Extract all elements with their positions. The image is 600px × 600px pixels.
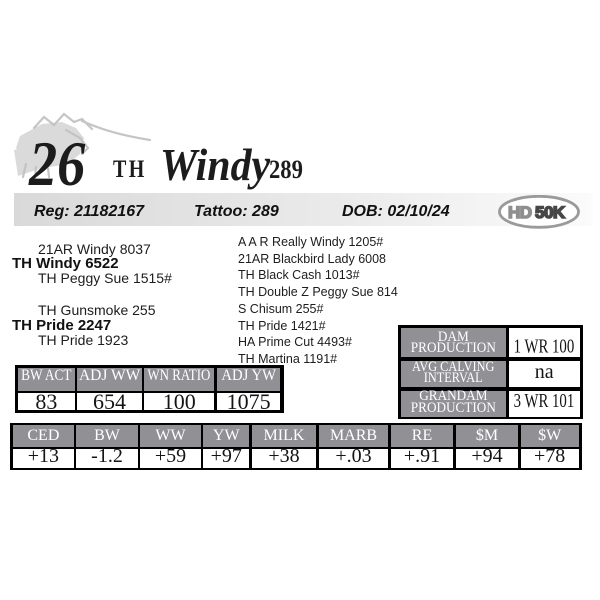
svg-text:50K: 50K — [535, 203, 566, 222]
svg-text:HD: HD — [508, 203, 532, 222]
